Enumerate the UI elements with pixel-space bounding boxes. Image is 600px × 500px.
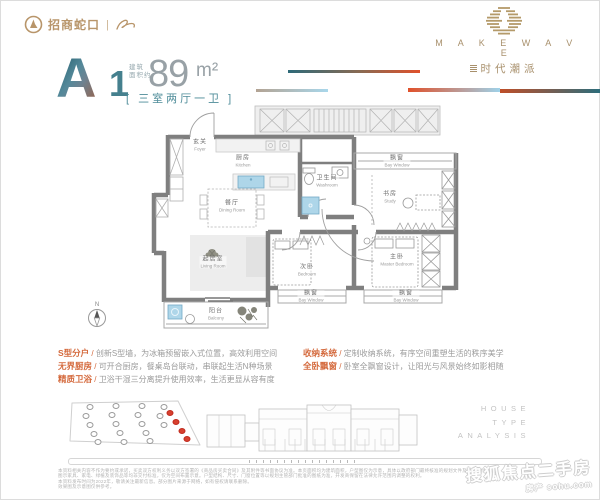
- feature-item: 全卧飘窗 / 卧室全飘窗设计，让阳光与风景始终如影相随: [303, 360, 547, 373]
- area-value: 89: [148, 55, 188, 93]
- compass-label: N: [95, 302, 99, 308]
- site-marker-red: [184, 436, 191, 442]
- room-label-washroom: 卫生间Washroom: [315, 175, 339, 187]
- room-label-living-room: 起居室Living Room: [199, 256, 226, 268]
- house-type-line: TYPE: [458, 416, 530, 430]
- deco-bar: [500, 89, 600, 93]
- cmsk-logo-icon: [24, 15, 43, 34]
- make-wave-emblem-icon: [482, 6, 526, 36]
- deco-bar: [256, 89, 328, 92]
- site-marker-red: [173, 419, 180, 425]
- feature-item: 收纳系统 / 定制收纳系统，有序空间重塑生活的秩序美学: [303, 347, 547, 360]
- site-marker-gray: [91, 431, 98, 437]
- room-label-bay-window-master: 飘窗Bay Window: [392, 290, 419, 302]
- building-plate-diagram: [205, 395, 420, 459]
- site-plan-outline: [60, 397, 208, 457]
- site-marker-red: [179, 428, 186, 434]
- house-type-line: ANALYSIS: [458, 429, 530, 443]
- room-label-dining-room: 餐厅Dining Room: [218, 200, 246, 212]
- site-marker-gray: [83, 413, 90, 419]
- features-right: 收纳系统 / 定制收纳系统，有序空间重塑生活的秩序美学全卧飘窗 / 卧室全飘窗设…: [303, 347, 547, 373]
- site-marker-red: [167, 410, 174, 416]
- unit-type-letter: A: [56, 50, 96, 106]
- site-marker-gray: [157, 413, 164, 419]
- area-unit: m²: [196, 60, 218, 82]
- floorplan-labels: 玄关Foyer厨房Kitchen餐厅Dining Room卫生间Washroom…: [150, 105, 470, 345]
- room-label-balcony: 阳台Balcony: [207, 308, 225, 320]
- room-label-foyer: 玄关Foyer: [192, 139, 208, 151]
- site-marker-gray: [109, 412, 116, 418]
- wave-mark-icon: [470, 65, 477, 72]
- brand-right: M A K E W A V E 时代潮派: [428, 6, 580, 76]
- site-marker-gray: [121, 439, 128, 445]
- room-label-bay-window-bedroom: 飘窗Bay Window: [297, 290, 324, 302]
- brand-right-subtitle: 时代潮派: [481, 61, 539, 76]
- layout-label: [ 三室两厅一卫 ]: [126, 90, 234, 106]
- room-label-bay-window-study: 飘窗Bay Window: [383, 155, 410, 167]
- scale-bar-ticks: [249, 460, 359, 463]
- room-label-kitchen: 厨房Kitchen: [234, 155, 251, 167]
- house-type-line: HOUSE: [458, 402, 530, 416]
- site-marker-gray: [87, 404, 94, 410]
- features-left: S型分户 / 创新S型墙，为冰箱预留嵌入式位置，高效利用空间无界厨房 / 可开合…: [58, 347, 302, 386]
- site-marker-gray: [113, 421, 120, 427]
- poster-page: 招商蛇口 | M A K E W A V E 时代潮派: [0, 0, 600, 500]
- floorplan: 玄关Foyer厨房Kitchen餐厅Dining Room卫生间Washroom…: [150, 105, 470, 345]
- site-marker-gray: [135, 412, 142, 418]
- site-marker-gray: [143, 430, 150, 436]
- feature-item: 无界厨房 / 可开合厨房，餐桌岛台联动，串联起生活N种场景: [58, 360, 302, 373]
- deco-bar: [288, 70, 420, 73]
- brand-left-name: 招商蛇口: [48, 16, 100, 33]
- site-marker-gray: [95, 439, 102, 445]
- site-marker-gray: [87, 422, 94, 428]
- site-marker-gray: [161, 404, 168, 410]
- site-marker-gray: [139, 421, 146, 427]
- feature-item: S型分户 / 创新S型墙，为冰箱预留嵌入式位置，高效利用空间: [58, 347, 302, 360]
- site-marker-gray: [161, 422, 168, 428]
- house-type-analysis: HOUSETYPEANALYSIS: [458, 402, 530, 443]
- site-marker-gray: [117, 430, 124, 436]
- room-label-bedroom: 次卧Bedroom: [297, 264, 317, 276]
- site-marker-gray: [113, 403, 120, 409]
- brand-right-subtitle-row: 时代潮派: [428, 61, 580, 76]
- feature-item: 精质卫浴 / 卫浴干湿三分离提升使用效率，生活更显从容有度: [58, 373, 302, 386]
- site-plan: [60, 397, 208, 457]
- watermark: 搜狐焦点二手房 房产 sohu.com: [465, 454, 593, 499]
- brand-left: 招商蛇口 |: [24, 15, 137, 34]
- compass-icon: N: [84, 299, 110, 331]
- deco-bar: [408, 88, 500, 92]
- room-label-study: 书房Study: [382, 191, 398, 203]
- brand-divider: |: [106, 19, 109, 31]
- brand-right-title: M A K E W A V E: [428, 38, 580, 58]
- room-label-master-bedroom: 主卧Master Bedroom: [379, 254, 414, 266]
- brand-flourish-icon: [115, 17, 137, 33]
- site-marker-gray: [139, 403, 146, 409]
- site-marker-gray: [147, 438, 154, 444]
